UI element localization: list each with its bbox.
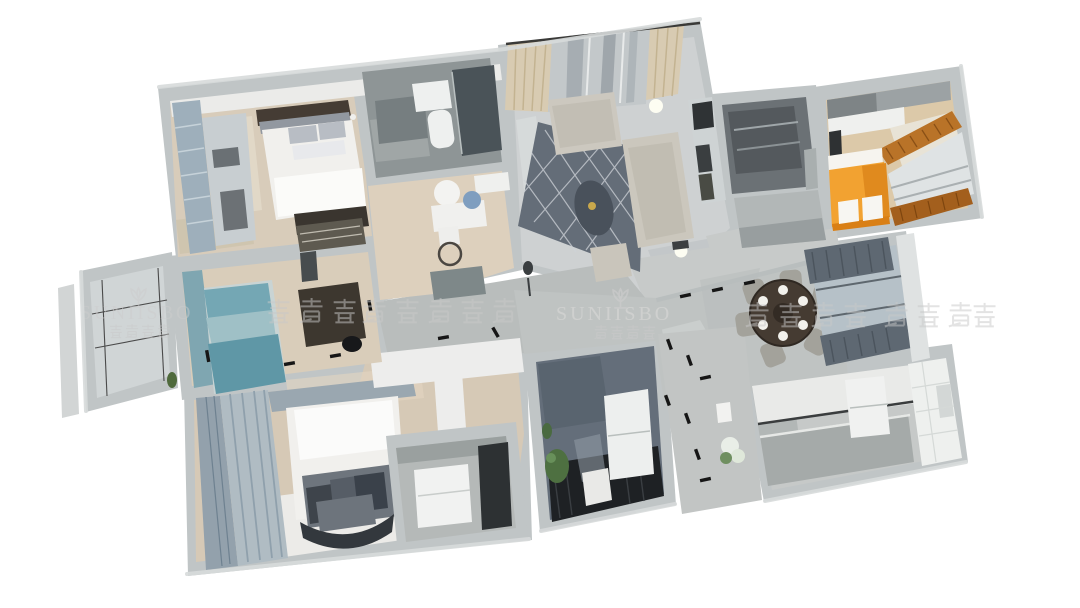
svg-text:SUNIISBO: SUNIISBO — [80, 302, 193, 324]
svg-text:SUNIISBO: SUNIISBO — [556, 303, 672, 325]
